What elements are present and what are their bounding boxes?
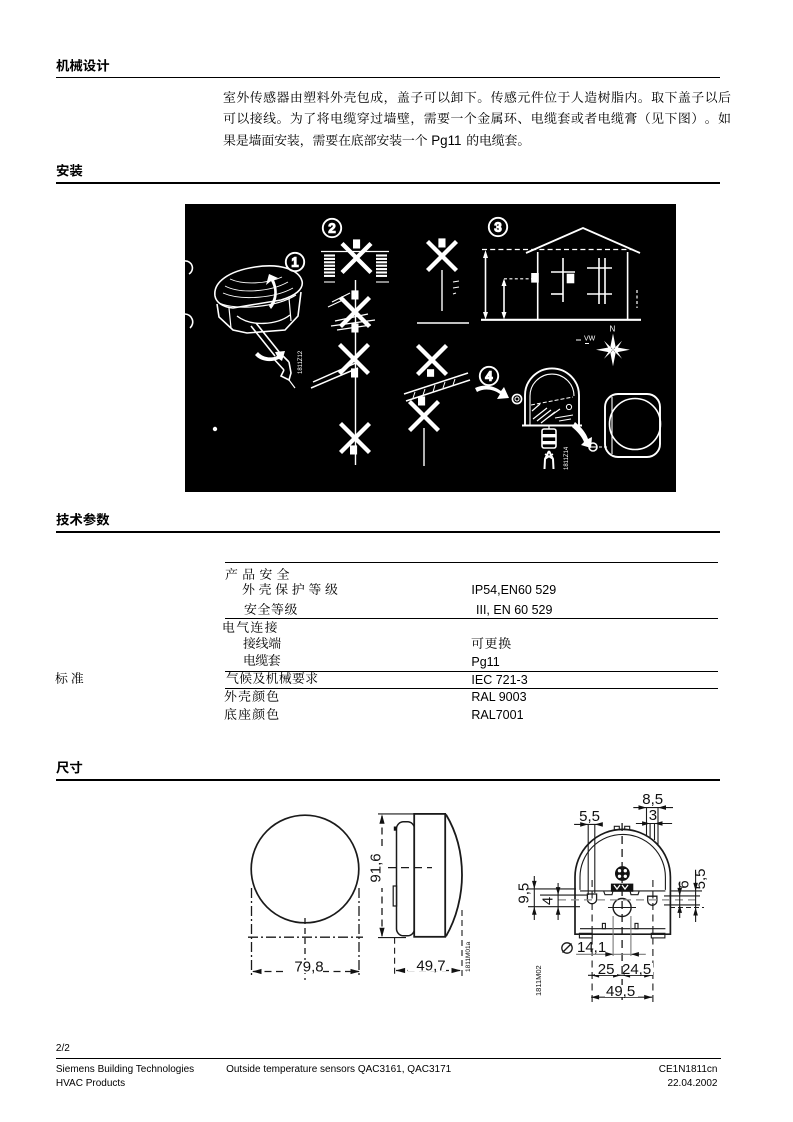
svg-text:2: 2 [328, 221, 335, 236]
svg-text:91,6: 91,6 [368, 853, 385, 882]
svg-text:4: 4 [485, 369, 492, 384]
svg-text:14,1: 14,1 [577, 939, 606, 956]
svg-text:1811Z12: 1811Z12 [298, 350, 304, 374]
svg-text:49,7: 49,7 [416, 957, 445, 974]
svg-text:1811Z14: 1811Z14 [564, 446, 570, 470]
svg-text:5,5: 5,5 [579, 808, 600, 825]
svg-text:Pg11: Pg11 [431, 133, 461, 148]
svg-text:3: 3 [649, 807, 657, 824]
svg-text:8,5: 8,5 [642, 791, 663, 808]
svg-text:1: 1 [291, 255, 298, 270]
svg-text:79,8: 79,8 [294, 958, 323, 975]
svg-text:1811M01a: 1811M01a [465, 941, 472, 972]
svg-text:5,5: 5,5 [692, 868, 709, 889]
svg-text:9,5: 9,5 [516, 883, 533, 904]
svg-text:4: 4 [539, 897, 556, 905]
svg-text:24,5: 24,5 [622, 961, 651, 978]
svg-text:3: 3 [494, 220, 501, 235]
svg-text:N: N [610, 325, 616, 334]
svg-text:49,5: 49,5 [606, 983, 635, 1000]
svg-text:VW: VW [584, 336, 596, 343]
svg-text:25: 25 [598, 961, 615, 978]
svg-text:6: 6 [675, 880, 692, 888]
svg-text:1811M02: 1811M02 [534, 965, 543, 996]
